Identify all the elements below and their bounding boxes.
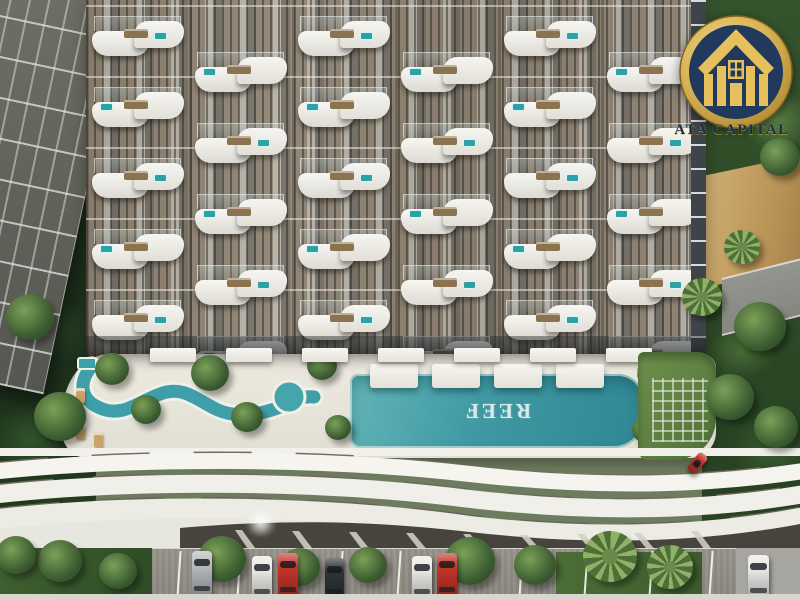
car [437,553,457,598]
balcony-plunge-pool [360,32,373,40]
cabana-structure [302,348,348,362]
balcony-daybed [536,313,560,322]
balcony-plunge-pool [154,32,167,40]
balcony-daybed [639,207,663,216]
car [748,555,769,599]
balcony-plunge-pool [409,68,422,76]
balcony-plunge-pool [615,68,628,76]
pool-platform [370,364,418,388]
balcony-daybed [433,65,457,74]
balcony-daybed [330,100,354,109]
balcony-daybed [330,313,354,322]
balcony-plunge-pool [154,174,167,182]
balcony [92,16,184,60]
roof-garden [638,352,716,460]
car-windshield [254,564,270,571]
balcony [401,123,493,167]
balcony [92,87,184,131]
balcony-plunge-pool [306,245,319,253]
developer-brand-name: ATA CAPITAL [652,122,800,139]
balcony-plunge-pool [306,103,319,111]
balcony-daybed [536,171,560,180]
vent-steam [244,510,278,536]
balcony-plunge-pool [100,245,113,253]
balcony-daybed [639,278,663,287]
balcony [607,194,699,238]
balcony [504,16,596,60]
developer-logo-badge [674,10,798,134]
tree [325,415,351,440]
pool-platform [494,364,542,388]
tree [760,138,800,176]
balcony-daybed [433,136,457,145]
car-rear-window [280,587,296,592]
balcony [298,87,390,131]
balcony [92,300,184,344]
balcony-plunge-pool [203,68,216,76]
balcony [504,87,596,131]
balcony-daybed [227,278,251,287]
balcony-daybed [330,29,354,38]
balcony-daybed [227,136,251,145]
car-windshield [439,561,455,568]
balcony [298,158,390,202]
palm-tree [647,545,693,589]
balcony-plunge-pool [203,210,216,218]
palm-tree [682,278,722,316]
pool-platform [432,364,480,388]
pool-platform [556,364,604,388]
balcony [504,229,596,273]
car-rear-window [750,588,767,593]
car-windshield [327,566,342,573]
balcony [195,265,287,309]
tree [38,540,82,582]
balcony-plunge-pool [566,316,579,324]
balcony [92,158,184,202]
car [278,553,298,598]
balcony-plunge-pool [257,281,270,289]
cabana-structure [530,348,576,362]
balcony-plunge-pool [669,281,682,289]
balcony-plunge-pool [100,103,113,111]
balcony-plunge-pool [360,174,373,182]
car-windshield [414,564,430,571]
balcony-daybed [536,29,560,38]
tree [349,547,387,583]
balcony-plunge-pool [566,174,579,182]
balcony-plunge-pool [669,139,682,147]
balcony [401,265,493,309]
balcony-plunge-pool [566,32,579,40]
balcony-daybed [536,100,560,109]
balcony-daybed [227,65,251,74]
tree [191,355,229,391]
balcony [298,229,390,273]
car-windshield [194,559,210,566]
tree [514,545,556,585]
balcony-daybed [124,313,148,322]
aerial-render-scene: REEF [0,0,800,600]
balcony-plunge-pool [512,245,525,253]
tree [131,395,161,424]
balcony [504,300,596,344]
tree [734,302,786,351]
balcony-daybed [124,242,148,251]
cabana-structure [150,348,196,362]
balcony [195,52,287,96]
tree [754,406,798,448]
balcony [195,123,287,167]
car [192,551,212,597]
tree [6,294,54,340]
balcony-daybed [330,242,354,251]
balcony [401,194,493,238]
balcony-plunge-pool [615,210,628,218]
balcony-daybed [124,100,148,109]
balcony [504,158,596,202]
cabana-structure [378,348,424,362]
car-rear-window [194,586,210,591]
balcony [298,16,390,60]
sun-lounger [94,432,103,447]
balcony-plunge-pool [512,103,525,111]
balcony-daybed [330,171,354,180]
tree [34,392,86,441]
cabana-structure [226,348,272,362]
parking-podium [0,448,800,552]
balcony-daybed [433,278,457,287]
car-windshield [750,563,767,570]
balcony-daybed [433,207,457,216]
palm-tree [583,531,637,582]
balcony-plunge-pool [257,139,270,147]
balcony [92,229,184,273]
balcony-plunge-pool [154,316,167,324]
balcony-daybed [227,207,251,216]
tree [706,374,754,420]
balcony-plunge-pool [463,281,476,289]
balcony-daybed [124,171,148,180]
balcony-plunge-pool [409,210,422,218]
balcony-plunge-pool [360,316,373,324]
tree [99,553,137,589]
car-windshield [280,561,296,568]
palm-tree [724,230,760,264]
balcony [401,52,493,96]
balcony-daybed [639,65,663,74]
curb-strip [0,594,800,600]
balcony [298,300,390,344]
car-rear-window [439,587,455,592]
tree [95,353,129,385]
balcony-daybed [536,242,560,251]
balcony-daybed [124,29,148,38]
cabana-structure [454,348,500,362]
tower-facade [86,0,706,362]
tree [231,402,263,432]
balcony-plunge-pool [463,139,476,147]
balcony [195,194,287,238]
